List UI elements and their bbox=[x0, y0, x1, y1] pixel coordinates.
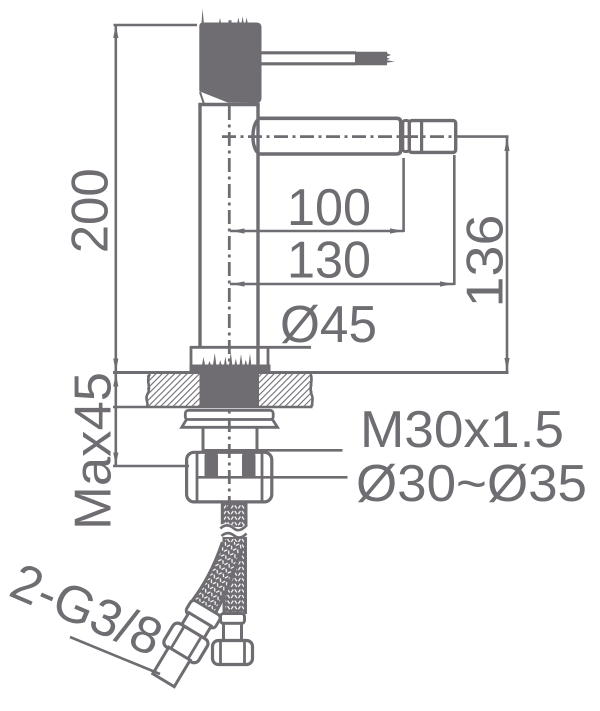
svg-text:100: 100 bbox=[287, 179, 371, 237]
svg-text:Max45: Max45 bbox=[65, 372, 123, 530]
svg-text:136: 136 bbox=[457, 215, 515, 308]
svg-text:Ø30~Ø35: Ø30~Ø35 bbox=[356, 455, 587, 513]
svg-text:Ø45: Ø45 bbox=[280, 296, 377, 354]
svg-text:200: 200 bbox=[62, 168, 120, 253]
svg-text:130: 130 bbox=[287, 232, 371, 290]
svg-text:M30x1.5: M30x1.5 bbox=[360, 401, 564, 459]
